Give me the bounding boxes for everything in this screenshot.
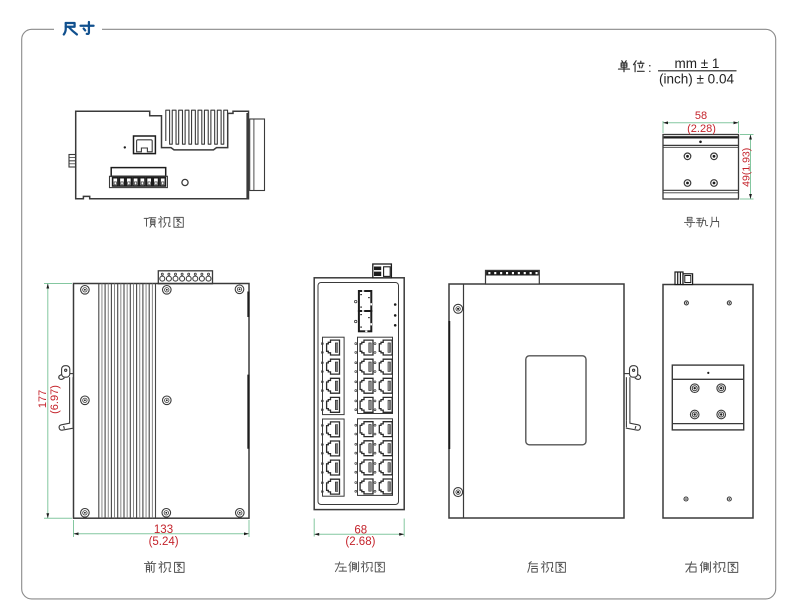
- svg-text::: :: [648, 60, 652, 75]
- svg-text:58: 58: [695, 110, 707, 122]
- svg-text:177: 177: [37, 390, 49, 408]
- svg-text:(2.28): (2.28): [687, 123, 716, 135]
- svg-text:68: 68: [354, 524, 367, 536]
- svg-text:49(1.93): 49(1.93): [740, 148, 752, 187]
- svg-text:(2.68): (2.68): [345, 536, 375, 548]
- svg-text:133: 133: [154, 524, 173, 536]
- svg-text:(6.97): (6.97): [49, 385, 61, 414]
- svg-text:mm ± 1: mm ± 1: [675, 56, 720, 71]
- svg-text:(inch) ± 0.04: (inch) ± 0.04: [659, 72, 734, 87]
- svg-text:(5.24): (5.24): [149, 536, 179, 548]
